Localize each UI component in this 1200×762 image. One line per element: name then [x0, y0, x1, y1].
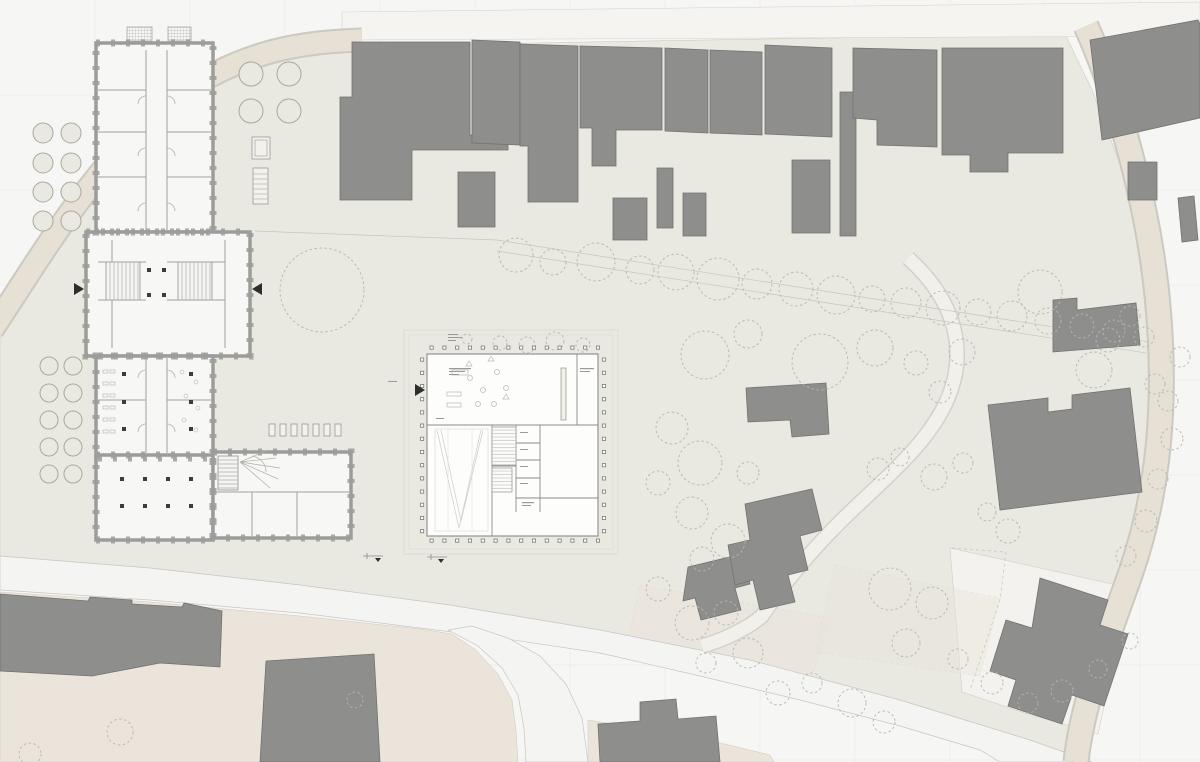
- bike-rack: [269, 424, 275, 436]
- facade-column: [602, 516, 605, 519]
- label-text-mark: [449, 371, 465, 372]
- tree-planted: [61, 211, 81, 231]
- tree-planted: [61, 182, 81, 202]
- facade-column: [602, 477, 605, 480]
- facade-column: [558, 346, 561, 349]
- label-text-mark: [522, 505, 531, 506]
- context-building: [1178, 196, 1198, 242]
- context-building: [458, 172, 495, 227]
- tree-planted: [64, 411, 82, 429]
- label-text-mark: [580, 368, 594, 369]
- facade-column: [421, 437, 424, 440]
- facade-column: [421, 530, 424, 533]
- stair-right: [178, 262, 212, 300]
- facade-column: [421, 358, 424, 361]
- facade-column: [421, 477, 424, 480]
- facade-column: [421, 424, 424, 427]
- bike-rack: [291, 424, 297, 436]
- label-text-mark: [448, 334, 458, 335]
- context-building: [657, 168, 673, 228]
- facade-column: [584, 346, 587, 349]
- column: [122, 400, 126, 404]
- column: [122, 427, 126, 431]
- bike-rack: [313, 424, 319, 436]
- bike-rack: [324, 424, 330, 436]
- facade-column: [443, 346, 446, 349]
- column: [189, 477, 193, 481]
- context-building: [665, 48, 708, 133]
- facade-column: [421, 398, 424, 401]
- facade-column: [456, 539, 459, 542]
- facade-column: [443, 539, 446, 542]
- tree-planted: [40, 411, 58, 429]
- label-text-mark: [580, 371, 590, 372]
- context-building: [520, 44, 578, 202]
- tree-planted: [239, 62, 263, 86]
- facade-column: [596, 539, 599, 542]
- facade-column: [602, 503, 605, 506]
- tree-planted: [33, 211, 53, 231]
- facade-column: [602, 530, 605, 533]
- stair-wing: [218, 456, 238, 490]
- facade-column: [421, 371, 424, 374]
- site-plan-canvas: [0, 0, 1200, 762]
- historic-building-block: [96, 43, 213, 232]
- tree-planted: [33, 123, 53, 143]
- facade-column: [602, 450, 605, 453]
- context-building: [765, 45, 832, 137]
- facade-column: [558, 539, 561, 542]
- stair-left: [106, 262, 140, 300]
- facade-column: [421, 464, 424, 467]
- tree-planted: [61, 153, 81, 173]
- label-text-mark: [449, 374, 459, 375]
- facade-column: [421, 516, 424, 519]
- facade-column: [430, 539, 433, 542]
- facade-column: [494, 346, 497, 349]
- column: [166, 477, 170, 481]
- facade-column: [532, 346, 535, 349]
- facade-column: [456, 346, 459, 349]
- facade-column: [602, 490, 605, 493]
- column: [122, 372, 126, 376]
- facade-column: [602, 371, 605, 374]
- bike-rack: [302, 424, 308, 436]
- facade-column: [430, 346, 433, 349]
- tree-planted: [40, 357, 58, 375]
- facade-column: [584, 539, 587, 542]
- context-building: [613, 198, 647, 240]
- context-building: [598, 699, 720, 762]
- tree-planted: [277, 62, 301, 86]
- column: [147, 293, 151, 297]
- ramp: [253, 168, 268, 204]
- facade-column: [481, 346, 484, 349]
- tree-planted: [33, 153, 53, 173]
- entry-canopy: [168, 27, 191, 41]
- tree-planted: [64, 384, 82, 402]
- facade-column: [468, 539, 471, 542]
- column: [143, 477, 147, 481]
- facade-column: [602, 384, 605, 387]
- facade-column: [520, 346, 523, 349]
- tree-planted: [64, 465, 82, 483]
- bike-rack: [280, 424, 286, 436]
- facade-column: [494, 539, 497, 542]
- label-text-mark: [449, 368, 471, 369]
- facade-column: [532, 539, 535, 542]
- label-text-mark: [520, 466, 528, 467]
- layer-topstrip: [342, 2, 1200, 40]
- facade-column: [602, 424, 605, 427]
- facade-column: [421, 490, 424, 493]
- facade-column: [421, 384, 424, 387]
- facade-column: [421, 503, 424, 506]
- column: [143, 504, 147, 508]
- context-building: [1090, 20, 1200, 140]
- context-building: [942, 48, 1063, 172]
- facade-column: [602, 411, 605, 414]
- site-plan-drawing: [0, 0, 1200, 762]
- top-sidewalk: [342, 2, 1200, 40]
- label-text-mark: [520, 449, 528, 450]
- tree-planted: [40, 384, 58, 402]
- facade-column: [421, 450, 424, 453]
- context-building: [472, 40, 520, 145]
- counter: [561, 368, 566, 420]
- facade-column: [602, 358, 605, 361]
- facade-column: [545, 539, 548, 542]
- tree-planted: [61, 123, 81, 143]
- facade-column: [545, 346, 548, 349]
- column: [120, 504, 124, 508]
- column: [120, 477, 124, 481]
- label-text-mark: [522, 502, 534, 503]
- facade-column: [520, 539, 523, 542]
- historic-building-block: [96, 455, 213, 540]
- column: [166, 504, 170, 508]
- context-building: [683, 193, 706, 236]
- facade-column: [596, 346, 599, 349]
- tree-planted: [277, 99, 301, 123]
- label-text-mark: [436, 418, 444, 419]
- facade-column: [571, 346, 574, 349]
- facade-column: [507, 539, 510, 542]
- facade-column: [602, 437, 605, 440]
- context-building: [0, 594, 222, 676]
- tree-planted: [64, 438, 82, 456]
- label-text-mark: [448, 337, 462, 338]
- column: [189, 504, 193, 508]
- facade-column: [421, 411, 424, 414]
- column: [189, 427, 193, 431]
- tree-planted: [40, 465, 58, 483]
- facade-column: [571, 539, 574, 542]
- label-text-mark: [448, 340, 456, 341]
- tree-planted: [33, 182, 53, 202]
- tree-planted: [64, 357, 82, 375]
- facade-column: [602, 398, 605, 401]
- historic-building-block: [96, 356, 213, 458]
- column: [147, 268, 151, 272]
- context-building: [710, 50, 762, 135]
- facade-column: [602, 464, 605, 467]
- label-text-mark: [388, 381, 397, 382]
- label-text-mark: [520, 432, 528, 433]
- label-text-mark: [520, 483, 528, 484]
- context-building: [260, 654, 380, 762]
- facade-column: [507, 346, 510, 349]
- entry-canopy: [127, 27, 152, 41]
- bike-rack: [335, 424, 341, 436]
- column: [189, 400, 193, 404]
- facade-column: [481, 539, 484, 542]
- column: [162, 293, 166, 297]
- tree-planted: [40, 438, 58, 456]
- column: [189, 372, 193, 376]
- tree-planted: [239, 99, 263, 123]
- context-building: [1128, 162, 1157, 200]
- column: [162, 268, 166, 272]
- facade-column: [468, 346, 471, 349]
- context-building: [792, 160, 830, 233]
- stair-main: [492, 427, 516, 465]
